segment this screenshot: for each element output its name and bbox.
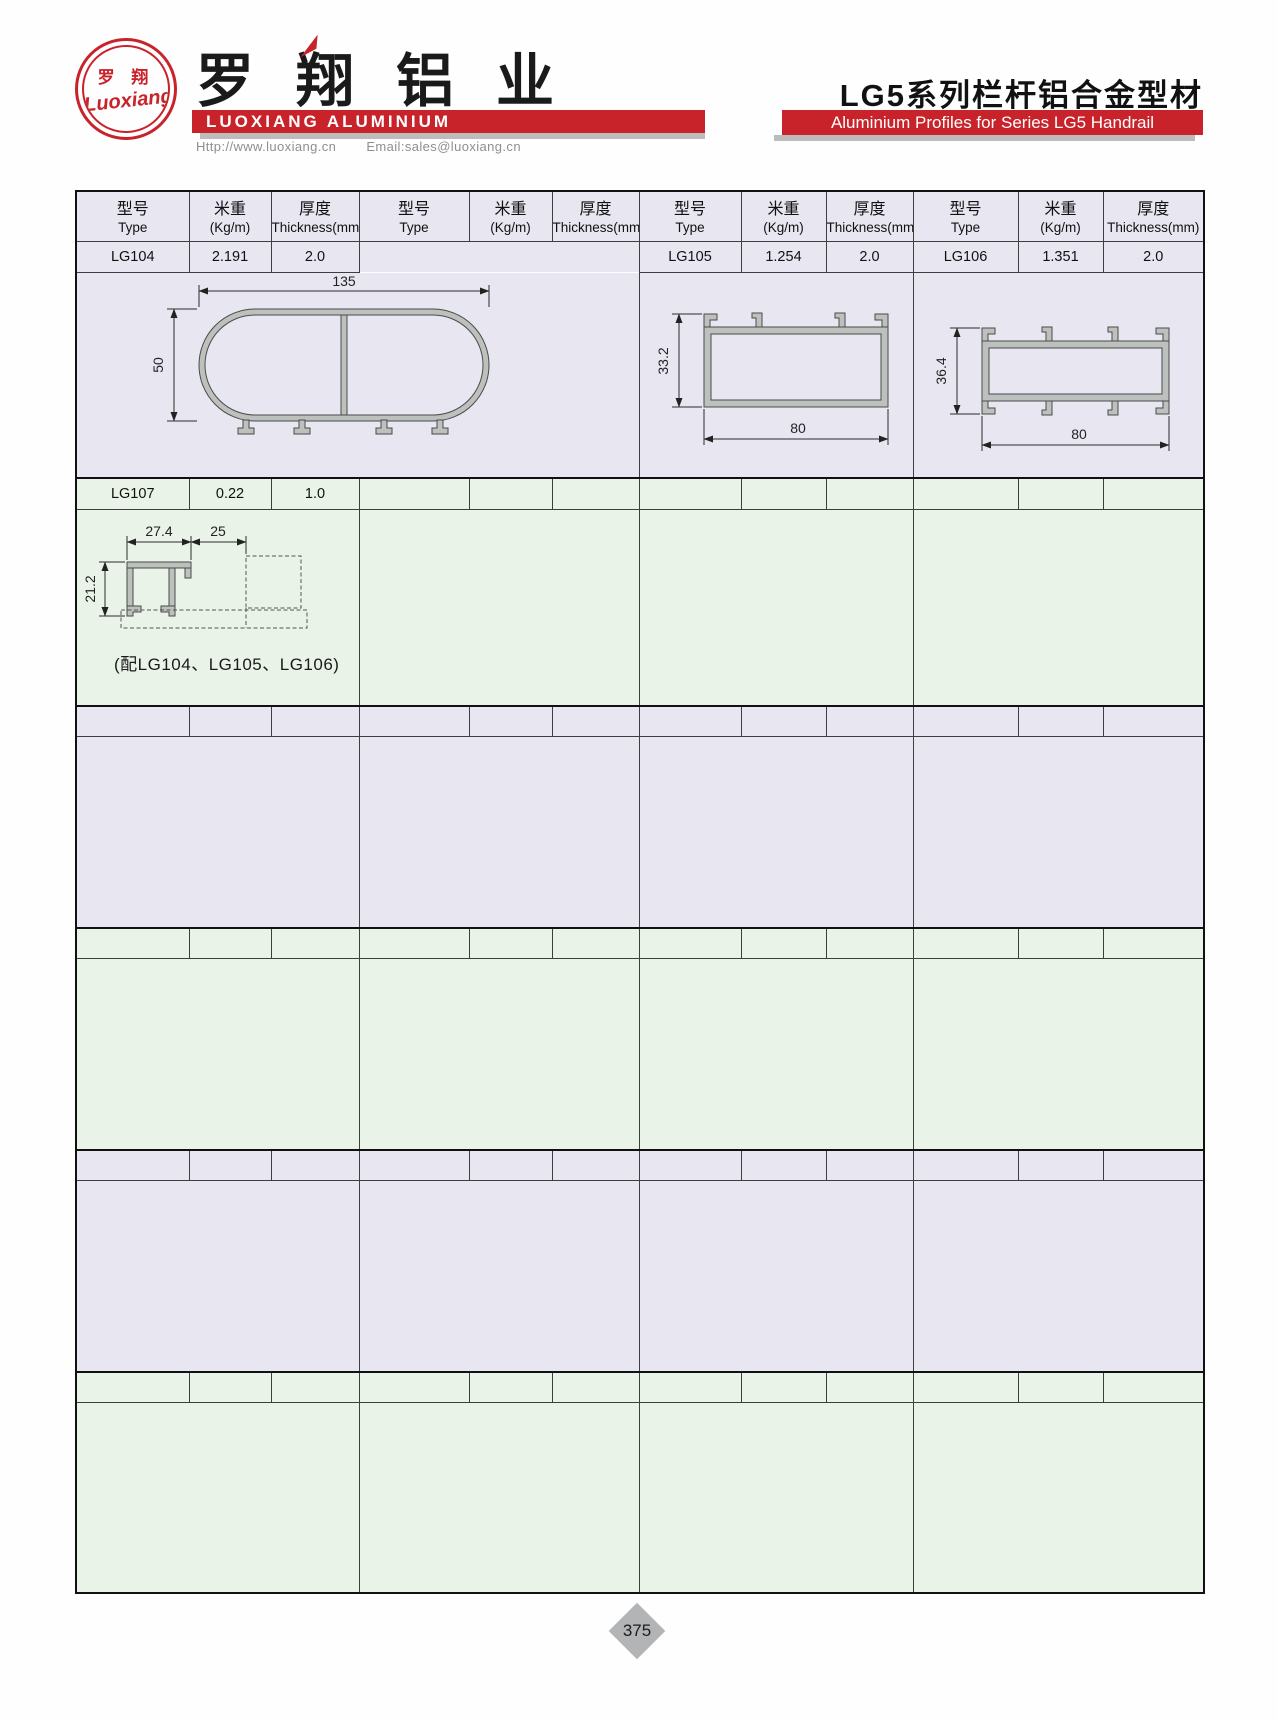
svg-text:27.4: 27.4 (145, 523, 172, 539)
series-title-cn: LG5系列栏杆铝合金型材 (840, 70, 1203, 115)
svg-text:25: 25 (210, 523, 226, 539)
drawing-empty-cell (913, 1180, 1204, 1372)
cell-empty (639, 478, 741, 509)
drawing-empty-cell (639, 1180, 913, 1372)
col-header-type: 型号Type (359, 191, 469, 241)
series-title-en: Aluminium Profiles for Series LG5 Handra… (831, 113, 1154, 132)
drawing-empty-cell (639, 958, 913, 1150)
cell-type-lg106: LG106 (913, 241, 1018, 272)
cell-empty (826, 706, 913, 736)
svg-text:21.2: 21.2 (82, 575, 98, 602)
cell-empty (826, 1372, 913, 1402)
svg-text:135: 135 (332, 273, 356, 289)
cell-empty (359, 1372, 469, 1402)
cell-empty (741, 1372, 826, 1402)
drawing-empty-cell (359, 1402, 639, 1593)
company-name-cn: 罗翔铝业 (196, 34, 666, 118)
col-header-type: 型号Type (76, 191, 189, 241)
drawing-empty-cell (76, 1180, 359, 1372)
cell-empty (826, 928, 913, 958)
col-header-thickness: 厚度Thickness(mm) (826, 191, 913, 241)
cell-empty (741, 1150, 826, 1180)
cell-empty (76, 1150, 189, 1180)
cell-empty-merged (359, 241, 639, 272)
cell-empty (741, 928, 826, 958)
drawing-empty-cell (359, 509, 639, 706)
drawing-lg104-cell: 135 50 (76, 272, 639, 478)
cell-thickness-lg106: 2.0 (1103, 241, 1204, 272)
cell-empty (359, 1150, 469, 1180)
cell-empty (1103, 928, 1204, 958)
cell-type-lg107: LG107 (76, 478, 189, 509)
cell-empty (552, 478, 639, 509)
email-text: Email:sales@luoxiang.cn (366, 139, 521, 154)
cell-empty (913, 1150, 1018, 1180)
cell-empty (1103, 1150, 1204, 1180)
cell-empty (913, 1372, 1018, 1402)
drawing-empty-cell (359, 958, 639, 1150)
drawing-empty-cell (913, 958, 1204, 1150)
svg-text:33.2: 33.2 (655, 347, 671, 374)
cell-empty (639, 1372, 741, 1402)
website-text: Http://www.luoxiang.cn (196, 139, 336, 154)
cell-empty (552, 928, 639, 958)
svg-text:80: 80 (1071, 426, 1087, 442)
cell-empty (639, 706, 741, 736)
lg107-caption: (配LG104、LG105、LG106) (95, 650, 359, 675)
cell-empty (469, 1150, 552, 1180)
lg105-profile-drawing: 33.2 80 (640, 273, 912, 477)
drawing-empty-cell (76, 736, 359, 928)
cell-empty (1018, 1372, 1103, 1402)
drawing-empty-cell (76, 958, 359, 1150)
col-header-weight: 米重(Kg/m) (469, 191, 552, 241)
cell-weight-lg105: 1.254 (741, 241, 826, 272)
cell-empty (1103, 1372, 1204, 1402)
cell-empty (271, 1372, 359, 1402)
cell-thickness-lg107: 1.0 (271, 478, 359, 509)
svg-text:36.4: 36.4 (933, 357, 949, 384)
cell-weight-lg106: 1.351 (1018, 241, 1103, 272)
cell-empty (826, 1150, 913, 1180)
cell-empty (469, 928, 552, 958)
cell-empty (552, 1372, 639, 1402)
svg-text:80: 80 (790, 420, 806, 436)
col-header-weight: 米重(Kg/m) (189, 191, 271, 241)
company-name-en-bar: LUOXIANG ALUMINIUM (192, 110, 705, 133)
company-name-en: LUOXIANG ALUMINIUM (206, 112, 451, 131)
drawing-empty-cell (639, 509, 913, 706)
series-title-en-bar: Aluminium Profiles for Series LG5 Handra… (782, 110, 1203, 135)
company-logo-inner: 罗 翔 Luoxiang (82, 45, 170, 133)
lg106-profile-drawing: 36.4 80 (914, 273, 1203, 477)
cell-empty (189, 1372, 271, 1402)
cell-empty (469, 1372, 552, 1402)
cell-type-lg105: LG105 (639, 241, 741, 272)
lg107-profile-drawing: 27.4 25 21.2 (77, 510, 358, 642)
cell-empty (271, 1150, 359, 1180)
cell-empty (639, 1150, 741, 1180)
drawing-empty-cell (76, 1402, 359, 1593)
drawing-empty-cell (913, 509, 1204, 706)
drawing-empty-cell (639, 736, 913, 928)
cell-empty (826, 478, 913, 509)
cell-empty (741, 478, 826, 509)
cell-empty (913, 706, 1018, 736)
cell-thickness-lg104: 2.0 (271, 241, 359, 272)
drawing-empty-cell (639, 1402, 913, 1593)
cell-empty (271, 928, 359, 958)
catalog-page: 罗 翔 Luoxiang 罗翔铝业 LUOXIANG ALUMINIUM Htt… (0, 0, 1277, 1721)
cell-empty (552, 706, 639, 736)
cell-empty (271, 706, 359, 736)
col-header-type: 型号Type (913, 191, 1018, 241)
cell-empty (913, 928, 1018, 958)
cell-empty (189, 1150, 271, 1180)
cell-empty (913, 478, 1018, 509)
spec-table: 型号Type 米重(Kg/m) 厚度Thickness(mm) 型号Type 米… (75, 190, 1205, 1594)
col-header-thickness: 厚度Thickness(mm) (1103, 191, 1204, 241)
svg-text:50: 50 (150, 357, 166, 373)
cell-empty (639, 928, 741, 958)
cell-empty (469, 706, 552, 736)
cell-empty (1018, 706, 1103, 736)
cell-empty (359, 478, 469, 509)
drawing-lg105-cell: 33.2 80 (639, 272, 913, 478)
col-header-weight: 米重(Kg/m) (1018, 191, 1103, 241)
lg104-profile-drawing: 135 50 (77, 273, 638, 477)
col-header-thickness: 厚度Thickness(mm) (271, 191, 359, 241)
cell-empty (552, 1150, 639, 1180)
cell-weight-lg107: 0.22 (189, 478, 271, 509)
drawing-empty-cell (913, 1402, 1204, 1593)
cell-type-lg104: LG104 (76, 241, 189, 272)
cell-empty (1018, 928, 1103, 958)
company-logo-icon: 罗 翔 Luoxiang (75, 38, 177, 140)
cell-empty (741, 706, 826, 736)
drawing-lg106-cell: 36.4 80 (913, 272, 1204, 478)
cell-empty (359, 706, 469, 736)
drawing-lg107-cell: 27.4 25 21.2 (配LG104、LG105、LG106) (76, 509, 359, 706)
cell-weight-lg104: 2.191 (189, 241, 271, 272)
cell-empty (359, 928, 469, 958)
cell-empty (1018, 1150, 1103, 1180)
cell-empty (1018, 478, 1103, 509)
drawing-empty-cell (359, 736, 639, 928)
col-header-thickness: 厚度Thickness(mm) (552, 191, 639, 241)
page-number: 375 (617, 1611, 657, 1651)
logo-script-text: Luoxiang (83, 86, 169, 118)
cell-empty (1103, 706, 1204, 736)
bar-right-shadow (774, 135, 1195, 141)
cell-empty (189, 928, 271, 958)
cell-empty (76, 706, 189, 736)
page-number-diamond: 375 (609, 1603, 666, 1660)
cell-empty (469, 478, 552, 509)
cell-empty (76, 1372, 189, 1402)
cell-thickness-lg105: 2.0 (826, 241, 913, 272)
cell-empty (189, 706, 271, 736)
cell-empty (76, 928, 189, 958)
logo-cn-text: 罗 翔 (84, 63, 168, 88)
drawing-empty-cell (359, 1180, 639, 1372)
cell-empty (1103, 478, 1204, 509)
col-header-weight: 米重(Kg/m) (741, 191, 826, 241)
drawing-empty-cell (913, 736, 1204, 928)
col-header-type: 型号Type (639, 191, 741, 241)
contact-line: Http://www.luoxiang.cn Email:sales@luoxi… (196, 139, 547, 154)
